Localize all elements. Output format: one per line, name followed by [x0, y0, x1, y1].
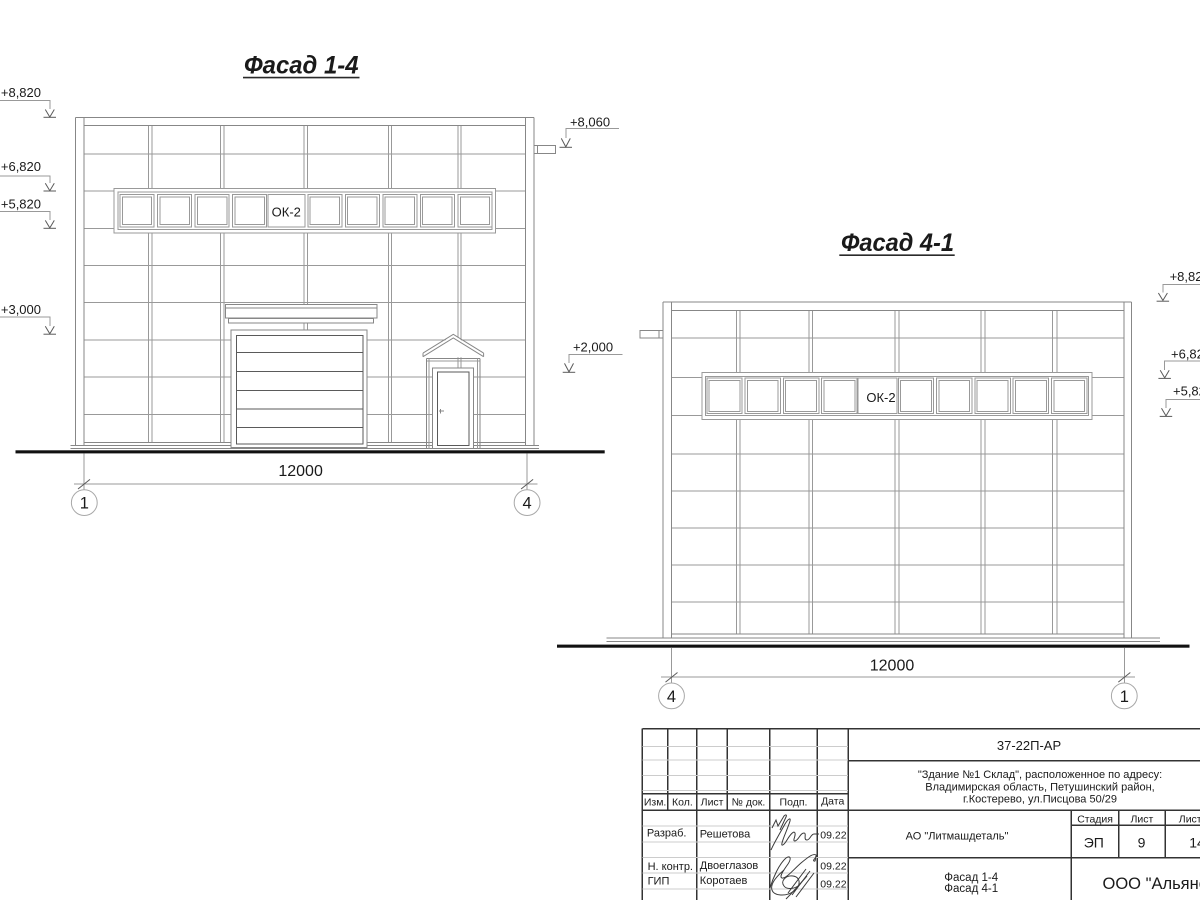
svg-text:+8,820: +8,820	[1170, 269, 1200, 284]
svg-text:37-22П-АР: 37-22П-АР	[997, 738, 1061, 753]
svg-text:+6,820: +6,820	[1, 159, 41, 174]
svg-text:1: 1	[80, 495, 89, 513]
svg-text:ООО "Альянс": ООО "Альянс"	[1103, 875, 1200, 893]
svg-text:+2,000: +2,000	[573, 340, 613, 355]
svg-text:12000: 12000	[278, 463, 323, 480]
svg-text:Н. контр.: Н. контр.	[648, 861, 693, 873]
svg-text:Лист: Лист	[1130, 813, 1153, 825]
svg-text:АО "Литмашдеталь": АО "Литмашдеталь"	[906, 831, 1009, 843]
svg-text:+5,820: +5,820	[1, 196, 41, 211]
svg-text:Двоеглазов: Двоеглазов	[700, 860, 759, 872]
svg-text:+5,820: +5,820	[1173, 383, 1200, 398]
svg-text:№ док.: № док.	[732, 797, 766, 809]
svg-text:ЭП: ЭП	[1084, 835, 1104, 851]
svg-text:Решетова: Решетова	[700, 829, 751, 841]
svg-text:+8,820: +8,820	[1, 85, 41, 100]
svg-text:4: 4	[523, 495, 532, 513]
svg-text:+6,820: +6,820	[1171, 346, 1200, 361]
svg-text:1: 1	[1120, 688, 1129, 706]
svg-text:09.22: 09.22	[820, 879, 846, 891]
svg-text:Подп.: Подп.	[780, 797, 808, 809]
svg-text:9: 9	[1138, 835, 1146, 851]
svg-text:Дата: Дата	[821, 796, 844, 808]
svg-text:Листов: Листов	[1179, 813, 1200, 825]
svg-text:14: 14	[1189, 835, 1200, 851]
svg-text:Кол.: Кол.	[672, 797, 693, 809]
svg-text:Фасад 4-1: Фасад 4-1	[841, 229, 954, 257]
svg-text:Фасад 1-4: Фасад 1-4	[244, 52, 359, 80]
svg-text:ОК-2: ОК-2	[866, 390, 895, 405]
svg-text:Изм.: Изм.	[644, 797, 667, 809]
svg-text:"Здание №1 Склад", расположенн: "Здание №1 Склад", расположенное по адре…	[918, 769, 1162, 781]
svg-text:Коротаев: Коротаев	[700, 875, 748, 887]
svg-text:г.Костерево, ул.Писцова 50/29: г.Костерево, ул.Писцова 50/29	[963, 793, 1117, 805]
svg-text:+3,000: +3,000	[1, 302, 41, 317]
svg-text:09.22: 09.22	[820, 830, 846, 842]
svg-text:Разраб.: Разраб.	[647, 828, 687, 840]
svg-text:12000: 12000	[870, 658, 915, 675]
svg-text:Владимирская область, Петушинс: Владимирская область, Петушинский район,	[925, 782, 1154, 794]
svg-text:+8,060: +8,060	[570, 114, 610, 129]
svg-text:09.22: 09.22	[820, 861, 846, 873]
svg-text:ГИП: ГИП	[648, 876, 670, 888]
svg-text:Лист: Лист	[701, 797, 724, 809]
svg-text:ОК-2: ОК-2	[272, 205, 301, 220]
svg-text:Фасад 1-4: Фасад 1-4	[944, 872, 998, 884]
svg-text:Стадия: Стадия	[1077, 813, 1113, 825]
svg-text:Фасад 4-1: Фасад 4-1	[944, 883, 998, 895]
svg-text:4: 4	[667, 688, 676, 706]
